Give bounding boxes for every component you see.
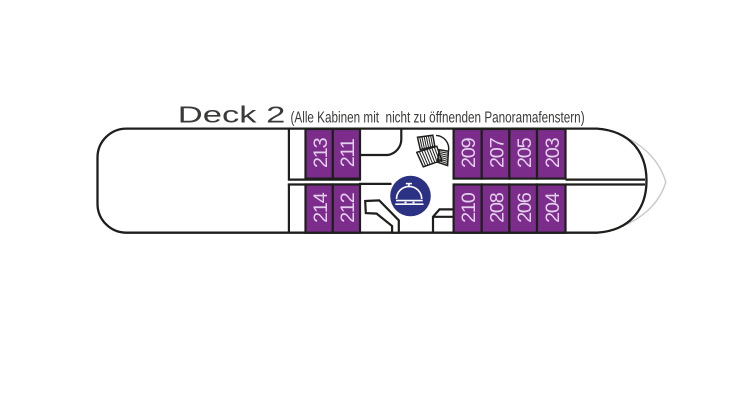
svg-text:213: 213 bbox=[310, 137, 332, 168]
svg-text:206: 206 bbox=[514, 192, 536, 223]
svg-text:212: 212 bbox=[337, 193, 359, 223]
svg-text:210: 210 bbox=[458, 192, 480, 223]
svg-text:204: 204 bbox=[542, 192, 564, 223]
svg-text:203: 203 bbox=[542, 137, 564, 168]
svg-text:209: 209 bbox=[458, 137, 480, 168]
svg-text:211: 211 bbox=[337, 138, 359, 167]
svg-text:205: 205 bbox=[514, 137, 536, 168]
svg-text:207: 207 bbox=[486, 138, 508, 168]
svg-text:(Alle Kabinen mit nicht zu öf: (Alle Kabinen mit nicht zu öffnenden Pan… bbox=[291, 110, 585, 127]
svg-text:208: 208 bbox=[486, 192, 508, 223]
svg-text:214: 214 bbox=[310, 192, 332, 223]
svg-text:Deck 2: Deck 2 bbox=[178, 102, 286, 128]
